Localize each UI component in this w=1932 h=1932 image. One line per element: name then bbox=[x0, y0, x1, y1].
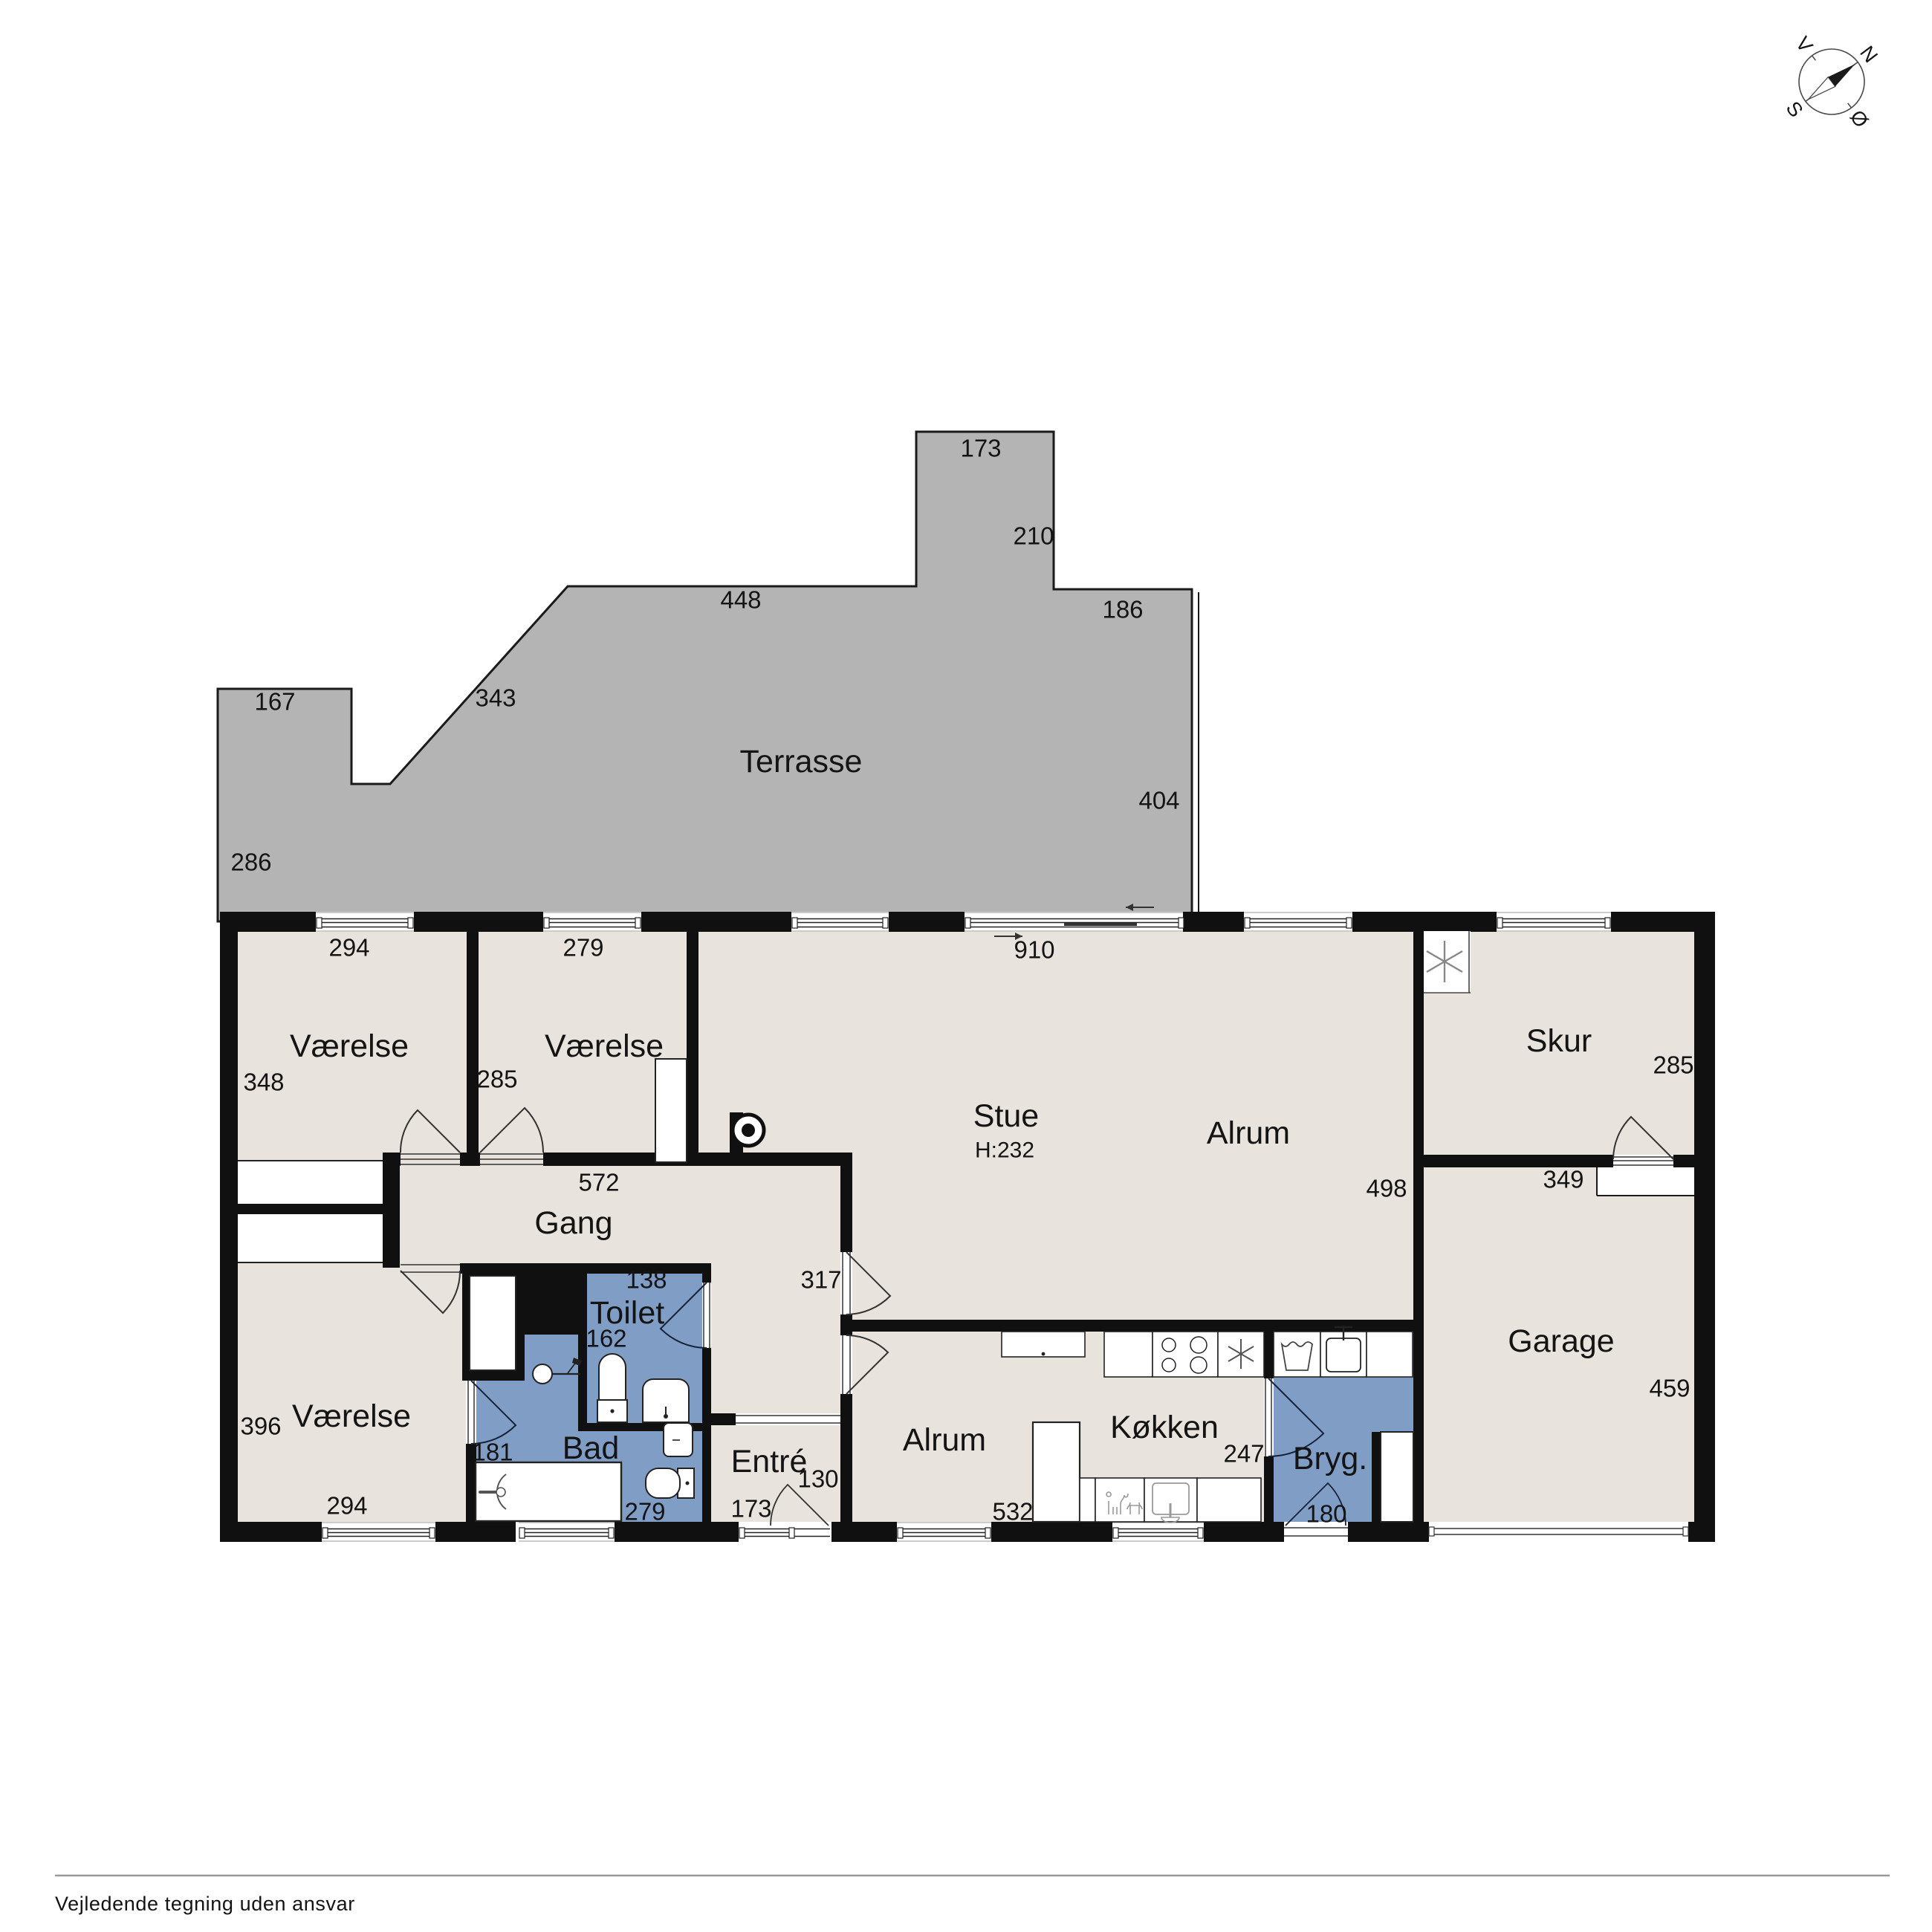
svg-text:448: 448 bbox=[720, 586, 761, 614]
svg-text:285: 285 bbox=[476, 1066, 517, 1093]
svg-text:130: 130 bbox=[797, 1465, 838, 1493]
svg-text:Garage: Garage bbox=[1508, 1323, 1614, 1359]
svg-text:279: 279 bbox=[624, 1498, 665, 1526]
svg-text:317: 317 bbox=[800, 1266, 841, 1294]
svg-text:Værelse: Værelse bbox=[545, 1028, 664, 1064]
svg-text:532: 532 bbox=[992, 1498, 1033, 1526]
svg-text:Værelse: Værelse bbox=[290, 1028, 409, 1064]
svg-text:286: 286 bbox=[230, 849, 271, 876]
svg-text:348: 348 bbox=[243, 1069, 284, 1096]
svg-text:349: 349 bbox=[1543, 1166, 1583, 1193]
svg-text:294: 294 bbox=[328, 934, 369, 962]
svg-text:Bryg.: Bryg. bbox=[1293, 1441, 1367, 1476]
svg-text:343: 343 bbox=[475, 684, 516, 712]
svg-text:Vejledende tegning uden ansvar: Vejledende tegning uden ansvar bbox=[55, 1893, 355, 1915]
svg-text:Entré: Entré bbox=[731, 1444, 808, 1479]
svg-text:572: 572 bbox=[578, 1169, 619, 1196]
svg-text:Gang: Gang bbox=[534, 1205, 612, 1241]
svg-text:Bad: Bad bbox=[563, 1430, 620, 1466]
svg-text:396: 396 bbox=[240, 1413, 281, 1440]
svg-text:167: 167 bbox=[254, 688, 295, 716]
svg-text:285: 285 bbox=[1653, 1051, 1693, 1079]
svg-text:180: 180 bbox=[1306, 1500, 1346, 1528]
svg-text:H:232: H:232 bbox=[975, 1138, 1034, 1163]
svg-text:459: 459 bbox=[1649, 1375, 1690, 1402]
svg-text:173: 173 bbox=[730, 1495, 771, 1523]
svg-text:173: 173 bbox=[960, 435, 1001, 462]
svg-text:210: 210 bbox=[1013, 522, 1054, 550]
svg-text:181: 181 bbox=[472, 1439, 513, 1466]
svg-text:Værelse: Værelse bbox=[292, 1398, 411, 1434]
svg-text:404: 404 bbox=[1138, 787, 1179, 814]
svg-text:498: 498 bbox=[1366, 1175, 1407, 1202]
svg-text:Alrum: Alrum bbox=[1207, 1115, 1290, 1151]
svg-text:294: 294 bbox=[326, 1492, 367, 1520]
svg-text:910: 910 bbox=[1014, 936, 1054, 964]
svg-text:162: 162 bbox=[586, 1325, 626, 1352]
svg-text:Skur: Skur bbox=[1526, 1023, 1592, 1059]
svg-text:Køkken: Køkken bbox=[1110, 1410, 1219, 1445]
svg-text:186: 186 bbox=[1102, 596, 1143, 623]
svg-text:247: 247 bbox=[1223, 1440, 1264, 1468]
svg-text:Stue: Stue bbox=[973, 1098, 1039, 1134]
svg-text:138: 138 bbox=[626, 1266, 667, 1294]
svg-text:279: 279 bbox=[563, 934, 603, 962]
svg-text:Terrasse: Terrasse bbox=[740, 744, 863, 779]
svg-text:Alrum: Alrum bbox=[903, 1422, 986, 1458]
